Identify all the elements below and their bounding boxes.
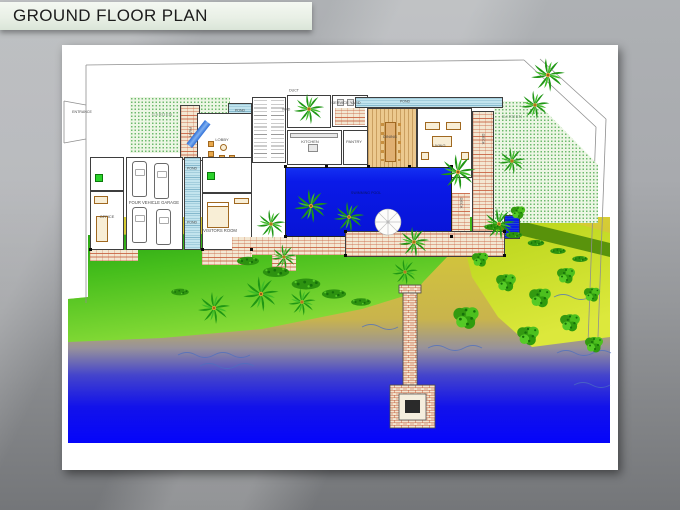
terrace-visitors xyxy=(202,250,252,265)
pond-a-area xyxy=(355,97,503,108)
slide: GROUND FLOOR PLAN xyxy=(0,0,680,510)
car xyxy=(154,163,169,199)
courtyard xyxy=(287,95,331,128)
terrace-steps xyxy=(272,255,296,271)
car xyxy=(156,209,171,245)
deck-right-strip xyxy=(472,111,494,235)
room-kitchen xyxy=(287,130,342,165)
title-bar: GROUND FLOOR PLAN xyxy=(0,2,312,30)
garden-right-area xyxy=(494,101,598,223)
shower-right xyxy=(207,172,215,180)
plan-sheet: ENTRANCE GARDEN GARDEN DUCT VOID SERVICE… xyxy=(62,45,618,470)
pond-strip xyxy=(184,157,201,250)
pond-d-area xyxy=(504,215,520,239)
room-dining xyxy=(367,108,417,170)
shower-left xyxy=(95,174,103,182)
room-pantry xyxy=(343,130,368,165)
page-title: GROUND FLOOR PLAN xyxy=(0,6,208,26)
floor-plan: ENTRANCE GARDEN GARDEN DUCT VOID SERVICE… xyxy=(62,45,618,470)
house-layer xyxy=(62,45,618,470)
swimming-pool xyxy=(285,167,452,237)
car xyxy=(132,207,147,243)
pool-approach xyxy=(252,163,287,237)
stairs xyxy=(252,97,286,163)
car xyxy=(132,161,147,197)
room-office xyxy=(90,191,124,250)
terrace-main xyxy=(345,231,505,257)
terrace-west xyxy=(90,250,138,261)
